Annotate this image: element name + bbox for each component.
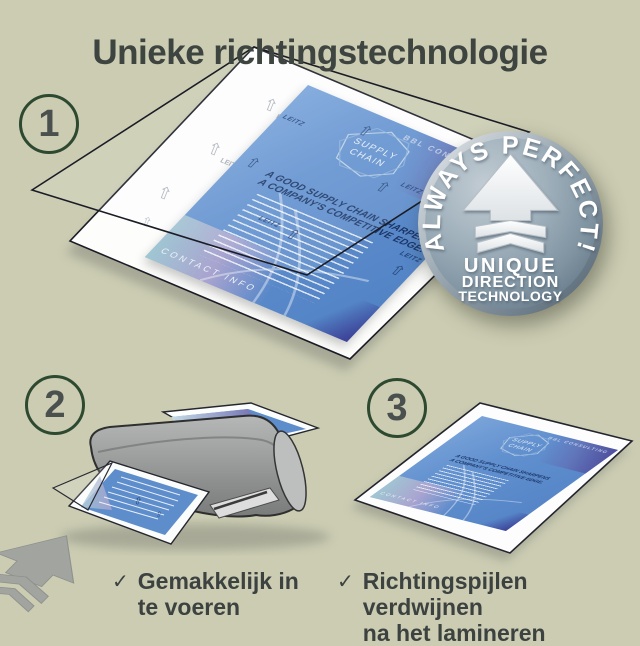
svg-text:⇧: ⇧ bbox=[204, 138, 225, 162]
step-number: 3 bbox=[386, 389, 407, 427]
badge-line3: TECHNOLOGY bbox=[458, 288, 562, 304]
caption-text: Richtingspijlen verdwijnen na het lamine… bbox=[363, 568, 640, 646]
step-number: 2 bbox=[44, 386, 65, 424]
always-perfect-badge: ALWAYS PERFECT! UNIQUE DIRECTION TECHNOL… bbox=[417, 130, 604, 317]
machine-end-cap bbox=[267, 428, 312, 514]
svg-text:⇧: ⇧ bbox=[154, 509, 163, 520]
caption-easy-feed: ✓ Gemakkelijk in te voeren bbox=[112, 568, 299, 620]
step-number: 1 bbox=[38, 105, 59, 143]
entry-pouch-edge bbox=[53, 463, 112, 510]
gray-direction-arrow-icon bbox=[0, 521, 105, 617]
entry-document: ⇧ ⇧ bbox=[53, 461, 209, 544]
checkmark-icon: ✓ bbox=[112, 568, 129, 620]
checkmark-icon: ✓ bbox=[337, 568, 354, 646]
exit-document: ⇧ bbox=[163, 403, 318, 451]
step-circle-1: 1 bbox=[19, 94, 79, 154]
caption-text: Gemakkelijk in te voeren bbox=[138, 568, 299, 620]
step-circle-2: 2 bbox=[25, 375, 85, 435]
page-title: Unieke richtingstechnologie bbox=[0, 33, 640, 73]
laminator-machine bbox=[90, 416, 312, 518]
svg-text:⇧: ⇧ bbox=[199, 431, 211, 447]
svg-text:⇧: ⇧ bbox=[154, 182, 175, 206]
exit-tray bbox=[210, 488, 279, 518]
step-circle-3: 3 bbox=[367, 378, 427, 438]
machine-shadow bbox=[60, 524, 330, 550]
caption-arrows-disappear: ✓ Richtingspijlen verdwijnen na het lami… bbox=[337, 568, 640, 646]
svg-text:⇧: ⇧ bbox=[260, 94, 281, 118]
svg-text:⇧: ⇧ bbox=[132, 495, 143, 508]
infographic: ⇧ LEITZ ⇧ LEITZ ⇧ ⇧ ⇧ bbox=[0, 0, 640, 640]
svg-text:⇧: ⇧ bbox=[139, 214, 155, 232]
